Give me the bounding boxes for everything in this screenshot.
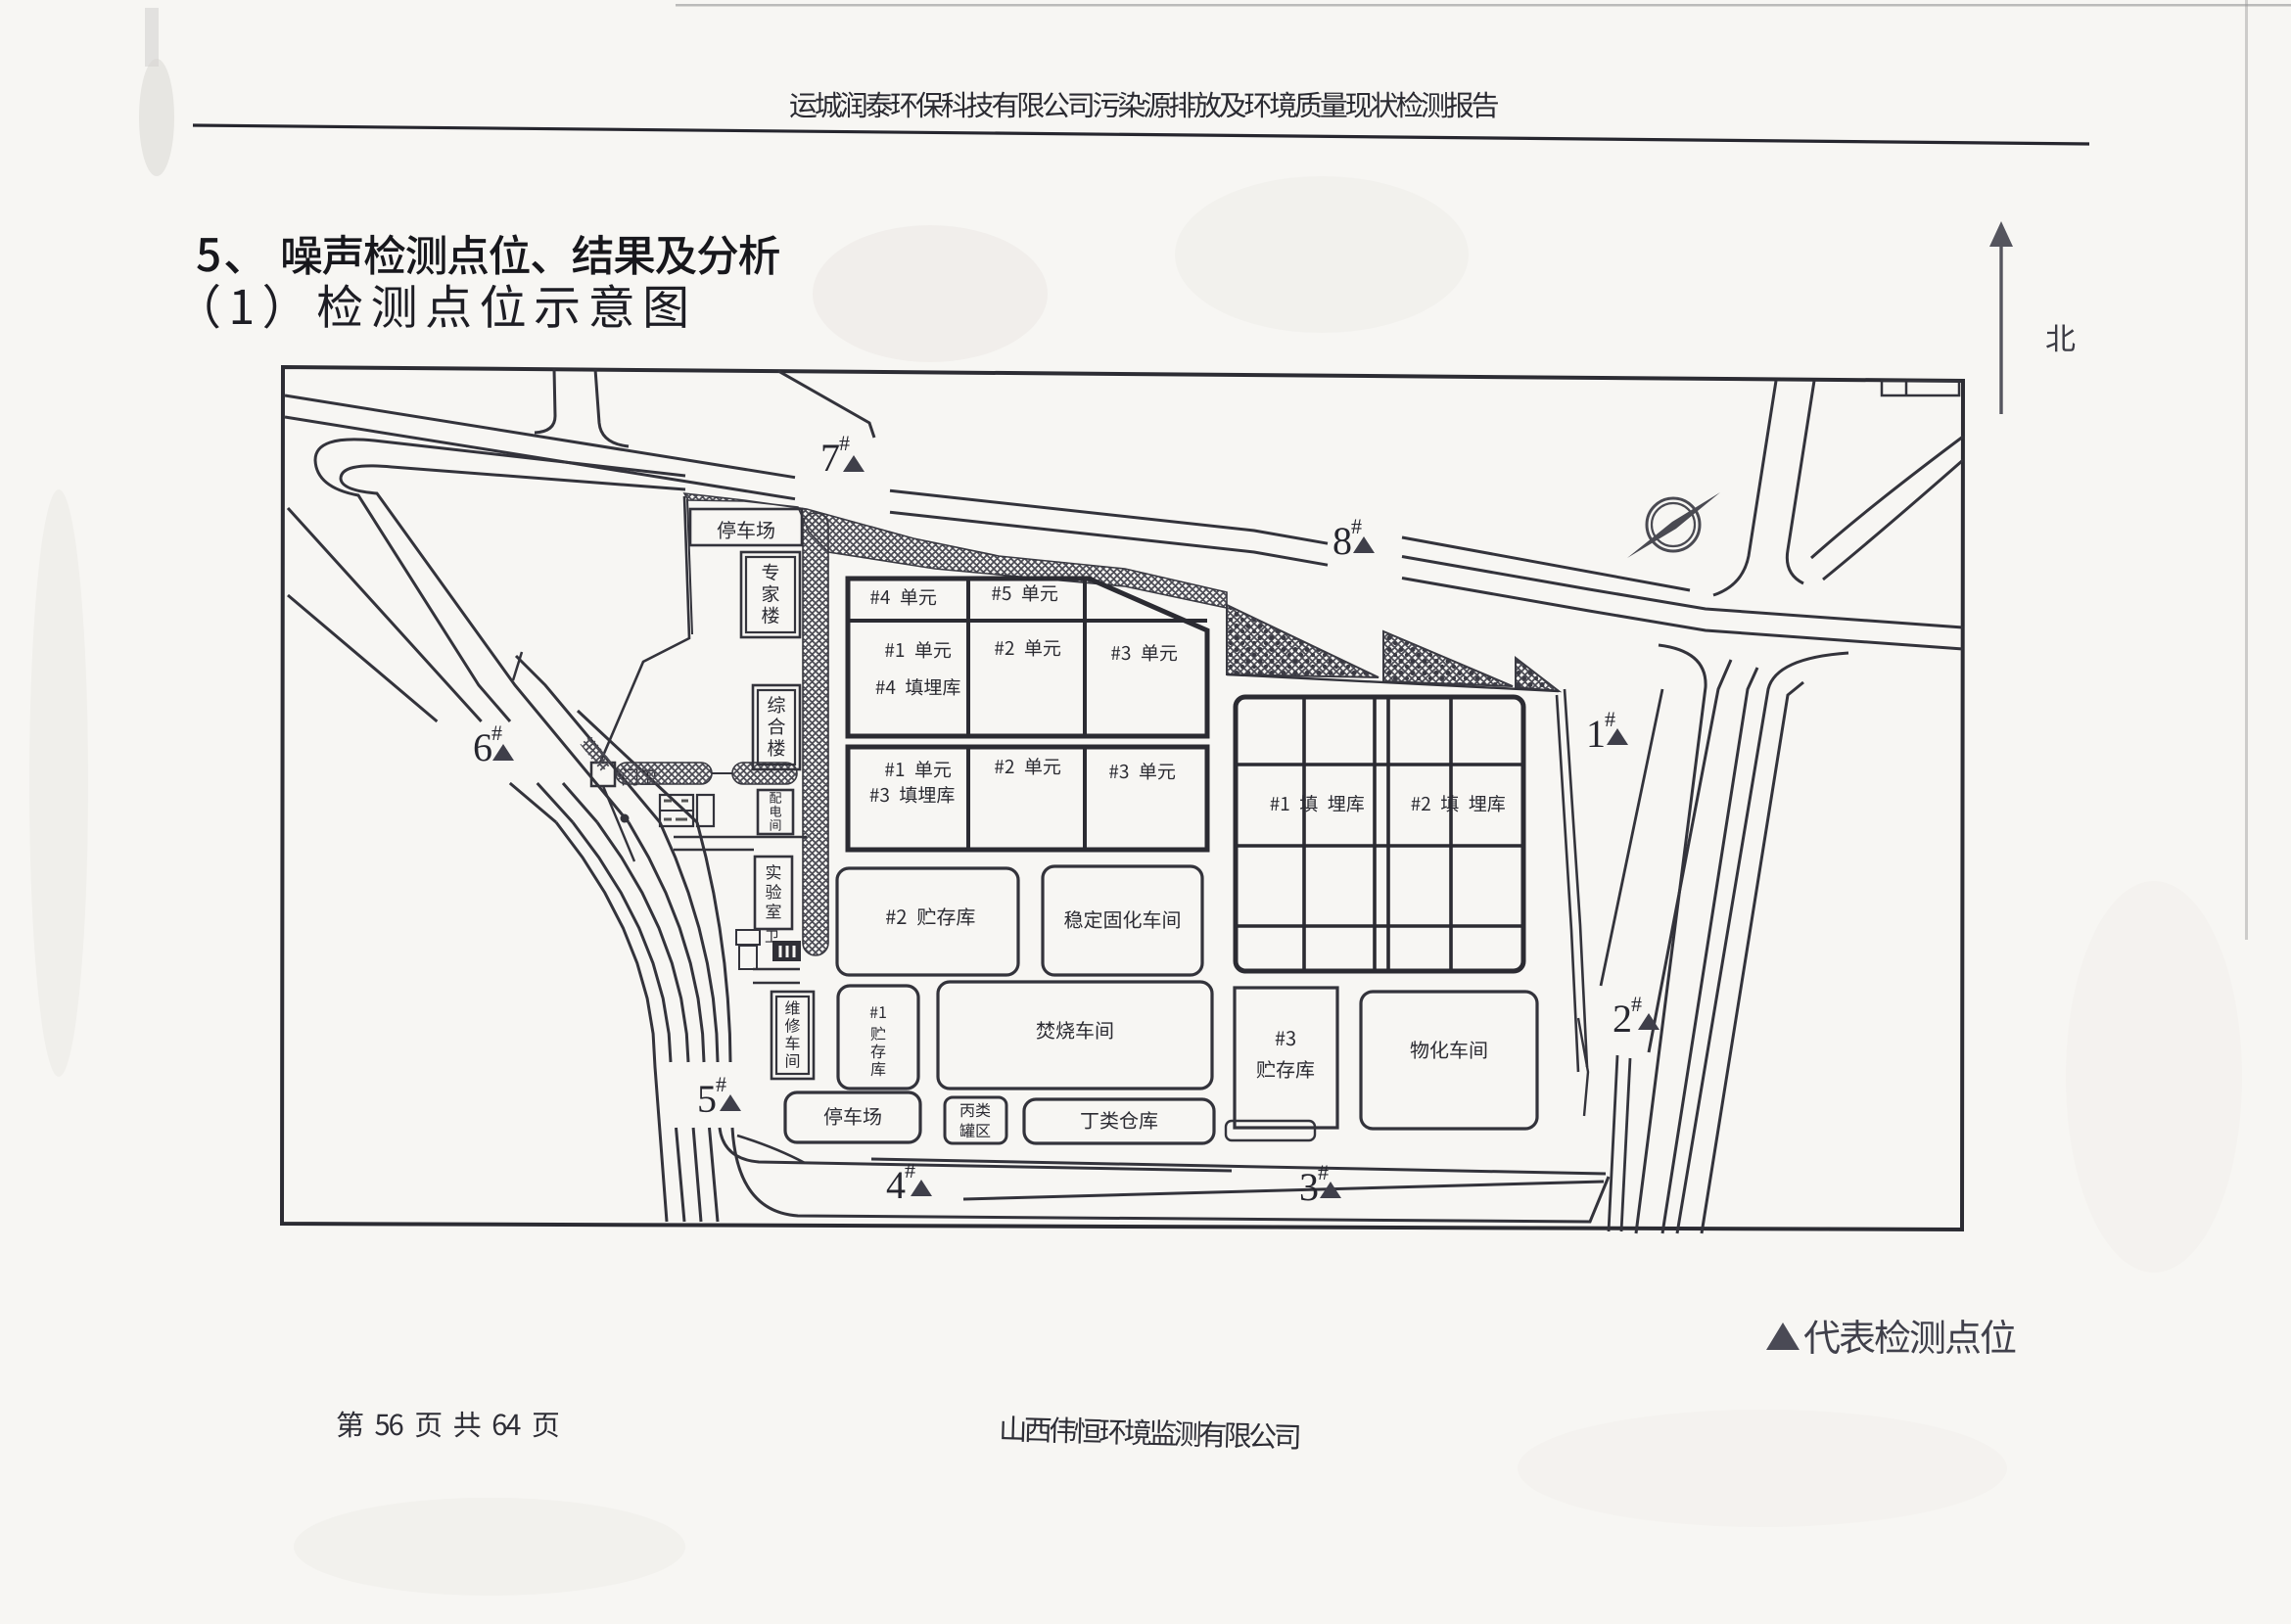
svg-text:2: 2 — [1613, 997, 1632, 1041]
svg-text:#: # — [491, 720, 502, 745]
svg-text:6: 6 — [473, 725, 492, 769]
svg-text:#: # — [1631, 992, 1642, 1016]
svg-text:4: 4 — [886, 1163, 906, 1207]
svg-text:1: 1 — [1586, 712, 1606, 756]
svg-text:#: # — [1318, 1160, 1329, 1184]
svg-text:#: # — [716, 1072, 726, 1096]
svg-text:#: # — [839, 431, 850, 455]
svg-text:8: 8 — [1333, 519, 1352, 563]
svg-text:#: # — [1605, 707, 1615, 731]
svg-text:#: # — [905, 1158, 915, 1183]
svg-text:3: 3 — [1299, 1165, 1319, 1209]
svg-text:5: 5 — [697, 1077, 717, 1121]
svg-text:7: 7 — [820, 436, 840, 480]
svg-text:#: # — [1351, 514, 1362, 538]
